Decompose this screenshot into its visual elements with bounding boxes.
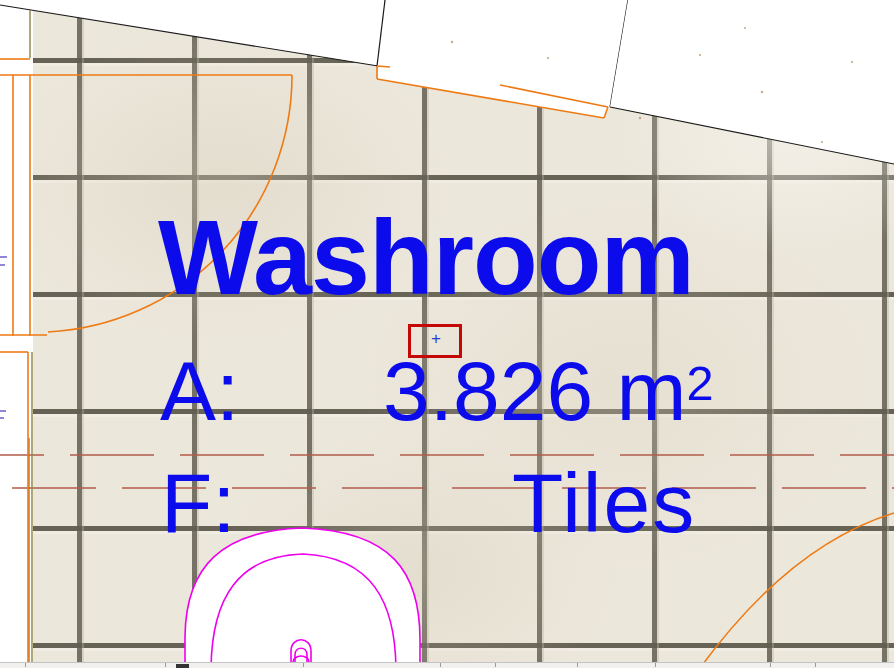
bottom-strip-tick	[303, 663, 304, 667]
bottom-strip-tick	[815, 663, 816, 667]
zone-finish-value: Tiles	[512, 461, 696, 545]
annotation-fragments	[0, 257, 7, 418]
zone-name-text[interactable]: Washroom	[158, 204, 694, 310]
bottom-edge-strip[interactable]	[0, 662, 894, 668]
exterior-area-top-left	[0, 0, 385, 66]
bottom-strip-tick	[770, 663, 771, 667]
floor-plan-canvas[interactable]: Washroom A: 3.826 m2 F: Tiles +	[0, 0, 894, 668]
bottom-strip-tick	[495, 663, 496, 667]
bottom-strip-tick	[655, 663, 656, 667]
bottom-strip-tick	[577, 663, 578, 667]
bottom-strip-widget	[176, 664, 189, 668]
zone-area-label: A:	[160, 349, 239, 433]
bottom-right-door-swing-arc[interactable]	[700, 513, 894, 668]
selection-marker[interactable]: +	[408, 324, 462, 358]
zone-finish-label: F:	[161, 461, 236, 545]
zone-area-value: 3.826 m2	[383, 349, 714, 433]
exterior-area-top-right	[610, 0, 894, 164]
wall-outline[interactable]	[0, 0, 894, 164]
dashed-grid-lines[interactable]	[0, 455, 894, 488]
bottom-strip-tick	[25, 663, 26, 667]
bottom-strip-tick	[440, 663, 441, 667]
crosshair-icon[interactable]: +	[431, 330, 441, 347]
bottom-strip-tick	[165, 663, 166, 667]
zone-area-number: 3.826 m	[383, 344, 687, 438]
zone-area-exponent: 2	[687, 356, 714, 410]
